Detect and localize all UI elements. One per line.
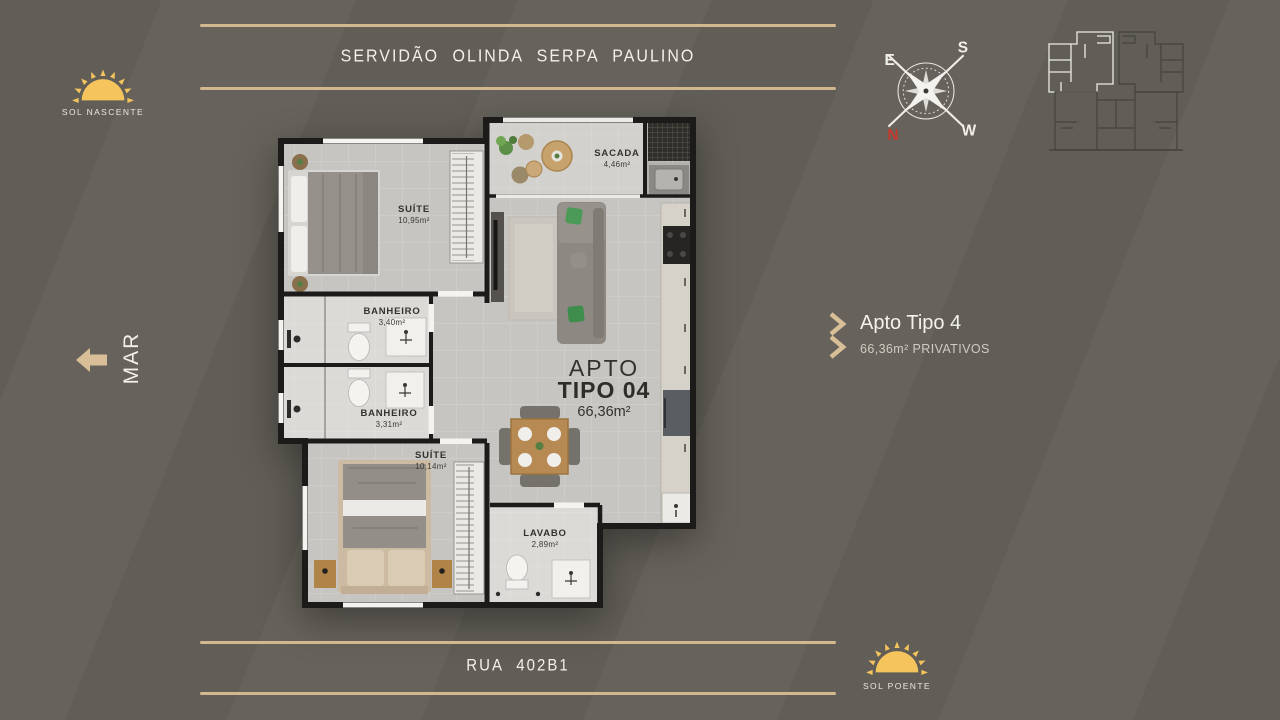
apartment-type-area: 66,36m²	[577, 404, 630, 420]
unit-title: Apto Tipo 4	[860, 312, 961, 335]
stove	[663, 226, 690, 264]
street-name-top: SERVIDÃO OLINDA SERPA PAULINO	[200, 47, 836, 67]
compass-north-label: N	[887, 127, 898, 144]
window	[343, 603, 423, 608]
bathroom2-door	[429, 406, 435, 434]
bottom-rule-lower	[200, 692, 836, 695]
unit-subtitle: 66,36m² PRIVATIVOS	[860, 342, 990, 356]
poster: SERVIDÃO OLINDA SERPA PAULINO SOL NASCEN…	[0, 0, 1280, 720]
dining-chair	[520, 474, 560, 487]
key-plan-highlighted-unit	[1049, 32, 1113, 92]
window	[279, 166, 284, 232]
room-area-suite2: 10,14m²	[415, 462, 446, 471]
room-label-lavabo: LAVABO	[523, 528, 567, 539]
suite2-nightstand	[314, 560, 336, 588]
suite2-door	[440, 439, 472, 445]
top-rule-lower	[200, 87, 836, 90]
suite2-nightstand	[432, 560, 452, 588]
window	[279, 320, 284, 350]
sea-arrow-icon	[76, 344, 108, 376]
window	[323, 139, 423, 144]
double-chevron-icon	[828, 312, 848, 360]
compass-west-label: W	[962, 122, 977, 139]
room-label-banheiro2: BANHEIRO	[360, 408, 417, 419]
balcony-railing	[503, 118, 633, 123]
kitchen-sink	[662, 493, 691, 523]
room-label-suite2: SUÍTE	[415, 450, 447, 461]
dining-chair	[499, 428, 512, 465]
suite1-door	[438, 291, 473, 297]
toilet	[349, 380, 370, 407]
window	[303, 486, 308, 550]
toilet	[349, 334, 370, 361]
sea-label: MAR	[120, 323, 144, 393]
bathroom1-door	[429, 304, 435, 332]
compass-east-label: E	[885, 52, 895, 69]
building-key-plan	[1037, 24, 1195, 160]
sunrise-icon	[71, 69, 135, 103]
technical-area	[648, 122, 691, 194]
window	[279, 393, 284, 423]
green-pillow	[565, 207, 583, 225]
room-area-banheiro2: 3,31m²	[376, 420, 403, 429]
room-label-suite1: SUÍTE	[398, 204, 430, 215]
toilet	[507, 555, 528, 581]
room-label-sacada: SACADA	[594, 148, 639, 159]
lavabo-door	[554, 503, 584, 509]
sunset-icon	[865, 641, 929, 675]
sunset-label: SOL POENTE	[822, 681, 972, 691]
balcony-sliding-door	[496, 195, 640, 199]
room-area-lavabo: 2,89m²	[532, 540, 559, 549]
shower-head	[294, 406, 301, 413]
street-name-bottom: RUA 402B1	[200, 656, 836, 675]
room-area-suite1: 10,95m²	[398, 216, 429, 225]
bottom-rule-upper	[200, 641, 836, 644]
dining-chair	[520, 406, 560, 419]
oven	[663, 390, 691, 436]
room-area-sacada: 4,46m²	[604, 160, 631, 169]
key-plan-building-outline	[1049, 32, 1183, 150]
dining-chair	[567, 428, 580, 465]
room-label-banheiro1: BANHEIRO	[363, 306, 420, 317]
kitchen	[661, 203, 691, 525]
compass-rose: E S W N	[872, 36, 980, 144]
apartment-type-line2: TIPO 04	[558, 377, 651, 403]
shower-head	[294, 336, 301, 343]
green-pillow	[567, 305, 585, 323]
floor-plan: SUÍTE 10,95m² SACADA 4,46m² BANHEIRO 3,4…	[268, 108, 720, 618]
top-rule-upper	[200, 24, 836, 27]
suite2-furniture	[314, 460, 484, 594]
room-area-banheiro1: 3,40m²	[379, 318, 406, 327]
balcony-chair	[518, 134, 534, 150]
compass-south-label: S	[958, 39, 968, 56]
unit-info[interactable]: Apto Tipo 4 66,36m² PRIVATIVOS	[826, 306, 1036, 366]
sunrise-label: SOL NASCENTE	[28, 107, 178, 117]
